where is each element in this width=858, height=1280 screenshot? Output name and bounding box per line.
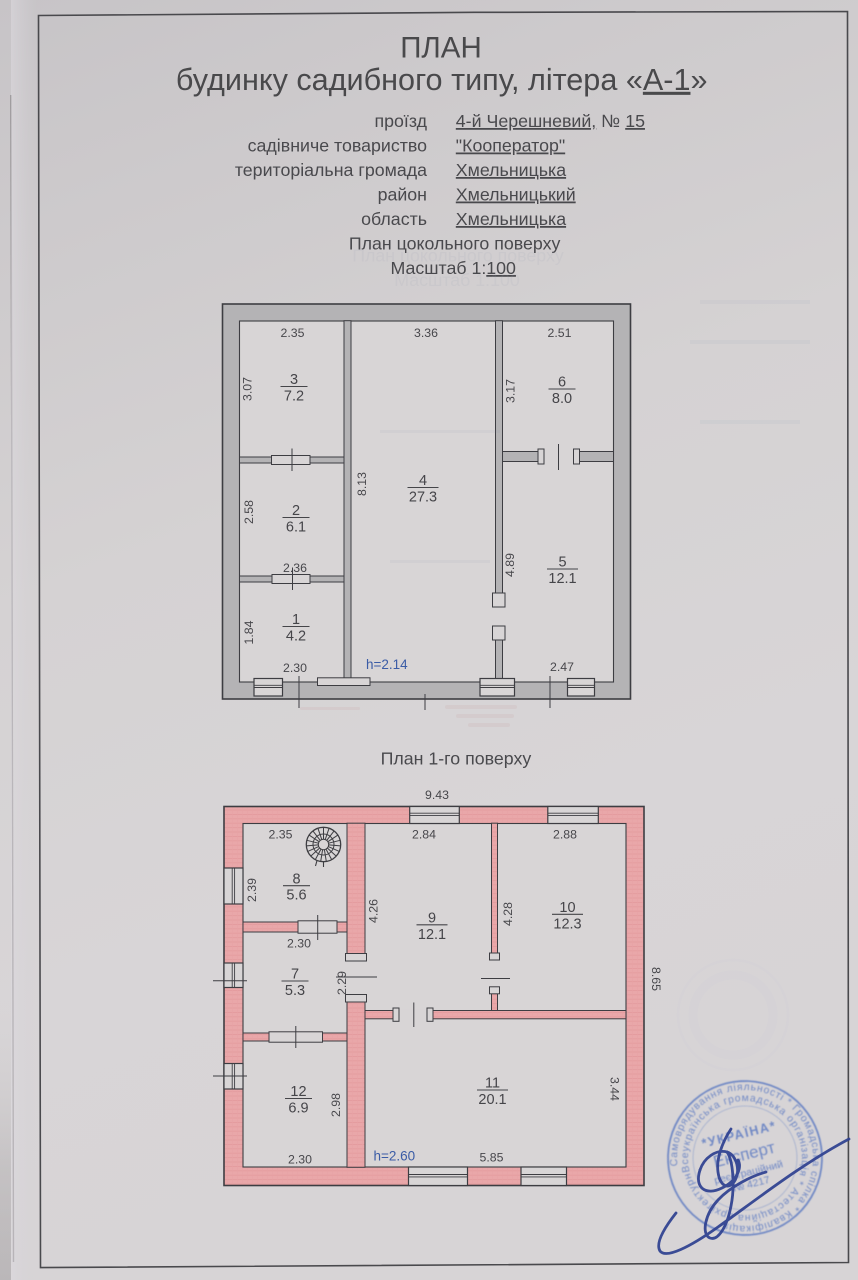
svg-text:район: район: [378, 185, 427, 205]
svg-text:4.89: 4.89: [503, 553, 517, 577]
svg-text:територіальна громада: територіальна громада: [235, 160, 427, 180]
svg-text:8.13: 8.13: [355, 472, 369, 496]
svg-text:12.1: 12.1: [418, 927, 446, 943]
svg-text:h=2.14: h=2.14: [366, 657, 408, 672]
svg-text:8.65: 8.65: [649, 967, 663, 991]
svg-text:3.07: 3.07: [241, 377, 255, 401]
svg-text:6.1: 6.1: [286, 520, 306, 536]
svg-text:4.2: 4.2: [286, 629, 306, 645]
svg-text:7.2: 7.2: [284, 389, 304, 405]
svg-text:"Кооператор": "Кооператор": [456, 136, 565, 156]
svg-text:9.43: 9.43: [425, 788, 449, 802]
svg-text:11: 11: [485, 1076, 500, 1092]
svg-text:12.3: 12.3: [553, 916, 581, 932]
svg-text:3.44: 3.44: [608, 1077, 622, 1101]
svg-text:5: 5: [558, 555, 566, 571]
svg-text:27.3: 27.3: [409, 490, 437, 506]
svg-text:1: 1: [292, 612, 300, 628]
svg-text:5.6: 5.6: [286, 888, 306, 904]
svg-text:Хмельницький: Хмельницький: [456, 185, 576, 205]
svg-text:План цокольного поверху: План цокольного поверху: [352, 246, 564, 266]
svg-text:2.51: 2.51: [548, 326, 572, 340]
svg-text:4: 4: [419, 473, 427, 489]
svg-text:2.88: 2.88: [553, 828, 577, 842]
svg-text:h=2.60: h=2.60: [374, 1149, 416, 1164]
svg-text:7: 7: [291, 967, 299, 983]
svg-text:Хмельницька: Хмельницька: [456, 209, 566, 229]
svg-text:Масштаб 1:100: Масштаб 1:100: [394, 270, 520, 290]
svg-text:2.30: 2.30: [287, 937, 311, 951]
svg-text:2.35: 2.35: [269, 828, 293, 842]
svg-text:20.1: 20.1: [478, 1092, 506, 1108]
svg-text:1.84: 1.84: [242, 620, 256, 644]
svg-text:проїзд: проїзд: [375, 111, 428, 131]
svg-text:2.47: 2.47: [550, 660, 574, 674]
svg-text:3.17: 3.17: [504, 379, 518, 403]
svg-text:12.1: 12.1: [548, 571, 576, 587]
svg-text:4.28: 4.28: [501, 902, 515, 926]
svg-text:6.9: 6.9: [288, 1101, 308, 1117]
svg-text:область: область: [361, 209, 427, 229]
svg-text:8.0: 8.0: [552, 391, 572, 407]
svg-text:2.39: 2.39: [245, 878, 259, 902]
svg-text:План 1-го поверху: План 1-го поверху: [381, 749, 532, 769]
svg-text:5.3: 5.3: [285, 983, 305, 999]
svg-text:Хмельницька: Хмельницька: [456, 160, 566, 180]
svg-text:ПЛАН: ПЛАН: [400, 31, 482, 64]
svg-text:будинку садибного типу, літера: будинку садибного типу, літера «А-1»: [176, 63, 708, 97]
svg-text:4.26: 4.26: [367, 899, 381, 923]
svg-text:2.98: 2.98: [329, 1093, 343, 1117]
svg-text:2.29: 2.29: [335, 971, 349, 995]
svg-text:2.36: 2.36: [283, 561, 307, 575]
svg-text:4-й Черешневий, № 15: 4-й Черешневий, № 15: [456, 111, 645, 131]
svg-text:9: 9: [428, 911, 436, 927]
svg-text:2.30: 2.30: [288, 1153, 312, 1167]
svg-text:10: 10: [559, 900, 575, 916]
svg-text:6: 6: [558, 375, 566, 391]
svg-text:3.36: 3.36: [414, 326, 438, 340]
svg-text:12: 12: [290, 1084, 306, 1100]
svg-text:3: 3: [290, 372, 298, 388]
svg-text:2.84: 2.84: [412, 828, 436, 842]
svg-text:садівниче товариство: садівниче товариство: [248, 136, 427, 156]
svg-text:2.58: 2.58: [242, 500, 256, 524]
svg-text:5.85: 5.85: [480, 1151, 504, 1165]
svg-text:2.30: 2.30: [283, 661, 307, 675]
svg-text:2.35: 2.35: [281, 326, 305, 340]
svg-text:8: 8: [292, 871, 300, 887]
svg-text:2: 2: [292, 503, 300, 519]
